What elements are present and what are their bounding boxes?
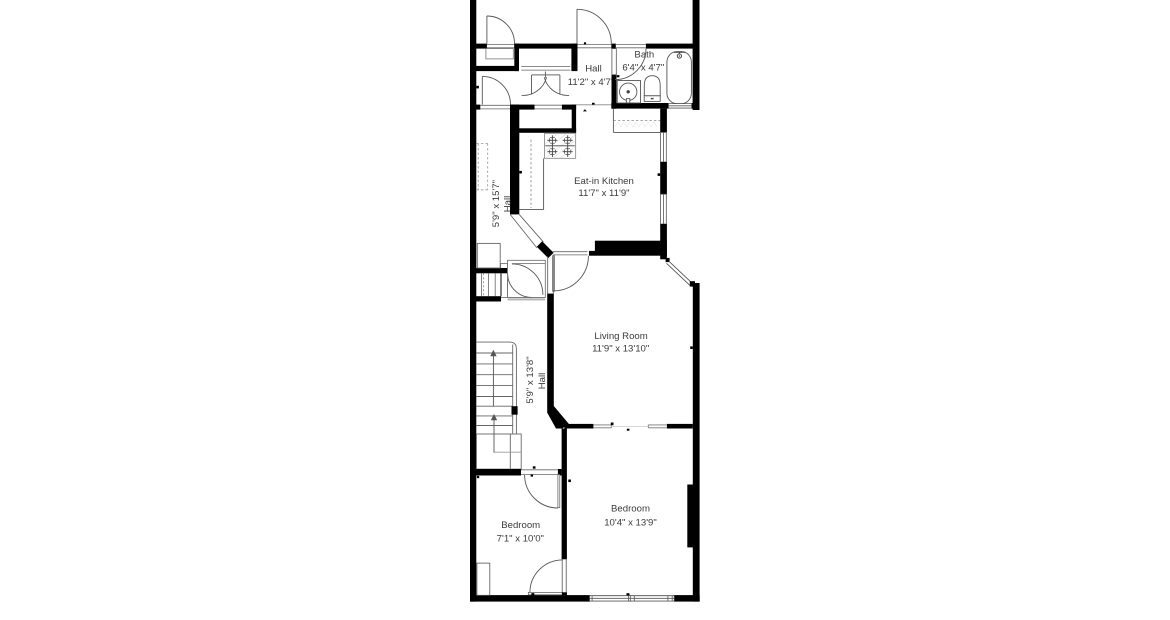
svg-text:Bath: Bath [634,50,654,61]
svg-text:11'7" x 11'9": 11'7" x 11'9" [578,188,629,199]
svg-text:7'1" x 10'0": 7'1" x 10'0" [497,533,544,544]
svg-text:6'4" x 4'7": 6'4" x 4'7" [622,63,664,74]
svg-text:Bedroom: Bedroom [611,503,650,514]
svg-text:5'9" x 13'8": 5'9" x 13'8" [525,356,536,403]
svg-text:Bedroom: Bedroom [501,520,540,531]
svg-text:Hall: Hall [503,196,514,213]
svg-text:11'2" x 4'7": 11'2" x 4'7" [568,77,615,88]
svg-text:Hall: Hall [537,373,548,390]
svg-text:Living Room: Living Room [594,331,647,342]
svg-text:11'9" x 13'10": 11'9" x 13'10" [592,343,649,354]
svg-text:Hall: Hall [585,64,602,75]
svg-text:Eat-in Kitchen: Eat-in Kitchen [574,176,634,187]
svg-text:10'4" x 13'9": 10'4" x 13'9" [604,517,657,528]
svg-text:5'9" x 15'7": 5'9" x 15'7" [491,180,502,227]
